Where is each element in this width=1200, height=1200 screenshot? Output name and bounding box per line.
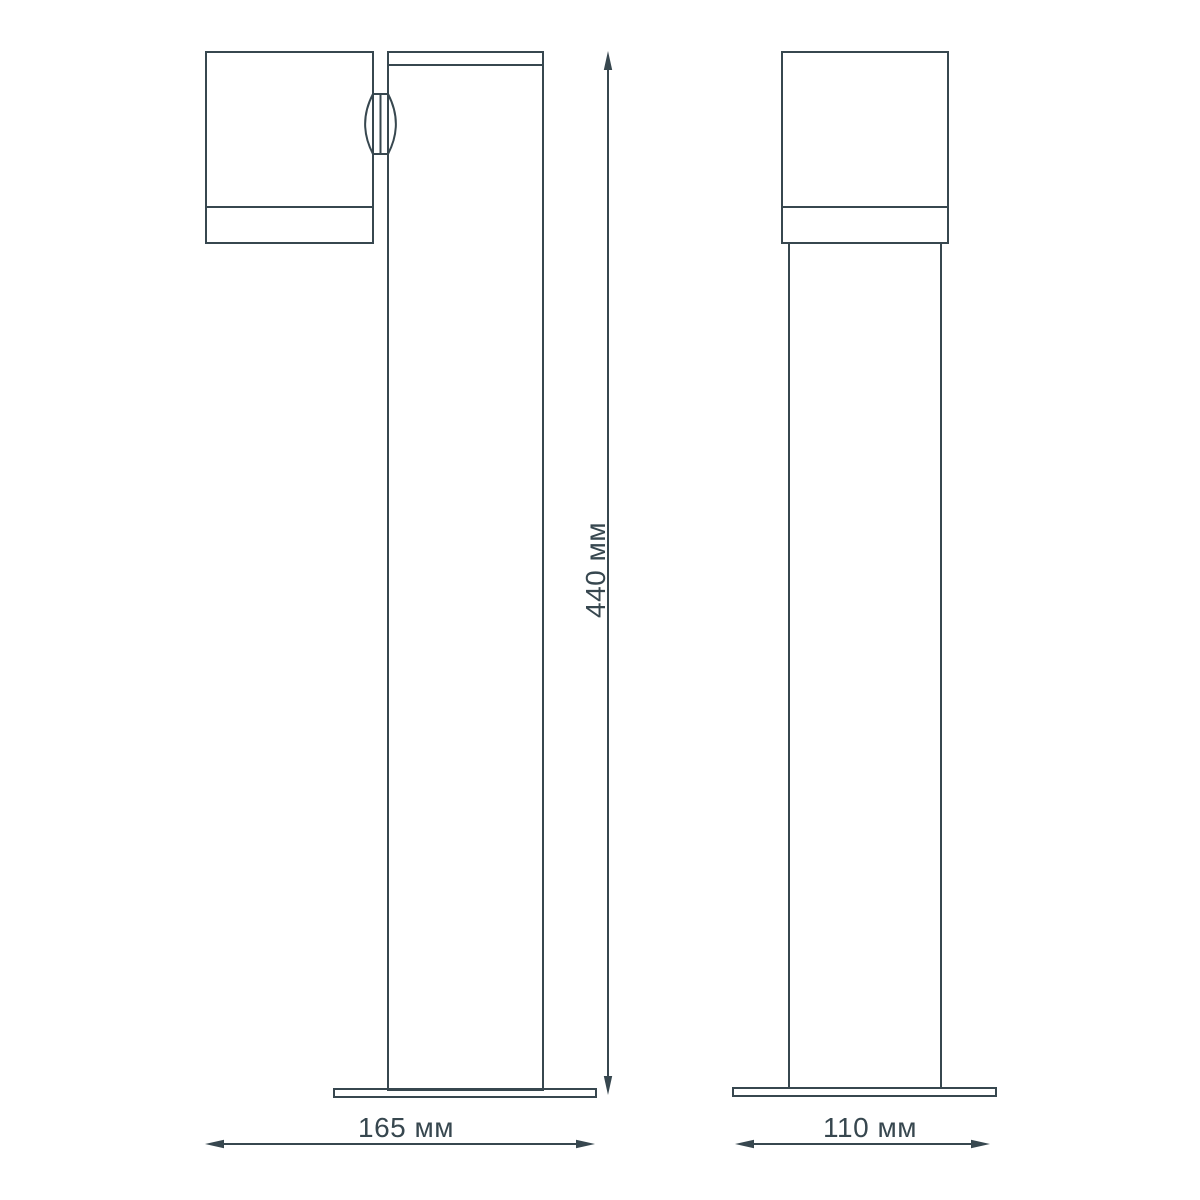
drawing-canvas: 440 мм 165 мм 110 мм: [0, 0, 1200, 1200]
side-width-dimension: 165 мм: [205, 1112, 595, 1148]
side-pole: [388, 52, 543, 1090]
side-lamp-head: [206, 52, 373, 243]
side-view: [206, 52, 596, 1097]
front-base-plate: [733, 1088, 996, 1096]
front-lamp-head: [782, 52, 948, 243]
bollard-light-technical-drawing: 440 мм 165 мм 110 мм: [0, 0, 1200, 1200]
arrow-right-icon: [576, 1140, 595, 1148]
height-dimension-label: 440 мм: [580, 522, 611, 618]
front-width-dimension-label: 110 мм: [823, 1112, 917, 1143]
height-dimension: 440 мм: [580, 51, 612, 1095]
front-view: [733, 52, 996, 1096]
front-width-dimension: 110 мм: [735, 1112, 990, 1148]
arrow-down-icon: [604, 1076, 612, 1095]
arrow-left-icon: [735, 1140, 754, 1148]
arrow-right-icon: [971, 1140, 990, 1148]
arrow-up-icon: [604, 51, 612, 70]
side-width-dimension-label: 165 мм: [358, 1112, 454, 1143]
arrow-left-icon: [205, 1140, 224, 1148]
